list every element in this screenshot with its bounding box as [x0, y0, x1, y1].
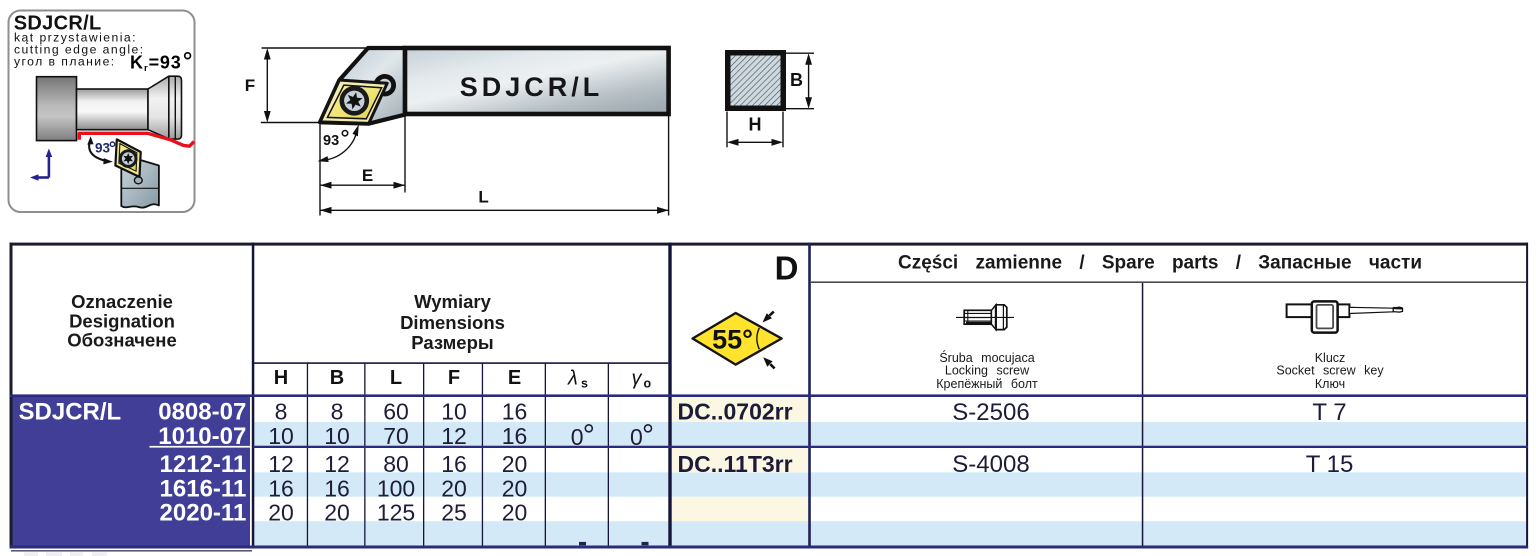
svg-text:20: 20	[502, 451, 528, 477]
svg-text:8: 8	[275, 399, 288, 425]
svg-text:12: 12	[268, 451, 294, 477]
svg-text:55°: 55°	[712, 325, 753, 355]
svg-text:80: 80	[383, 451, 409, 477]
svg-text:12: 12	[441, 423, 467, 449]
svg-text:L: L	[478, 188, 488, 207]
svg-text:Śruba mocujaca: Śruba mocujaca	[939, 350, 1034, 365]
svg-text:H: H	[274, 367, 288, 389]
svg-text:16: 16	[441, 451, 467, 477]
svg-text:Oznaczenie: Oznaczenie	[71, 291, 173, 312]
svg-text:16: 16	[324, 475, 350, 501]
svg-text:DC..0702rr: DC..0702rr	[678, 399, 793, 425]
svg-text:25: 25	[441, 500, 467, 526]
svg-text:Обозначене: Обозначене	[67, 330, 177, 351]
svg-text:0808-07: 0808-07	[158, 399, 246, 426]
svg-text:S-4008: S-4008	[952, 451, 1029, 478]
svg-text:60: 60	[383, 399, 409, 425]
svg-text:угол в плание:: угол в плание:	[14, 55, 116, 69]
svg-text:20: 20	[324, 500, 350, 526]
svg-text:K: K	[130, 53, 143, 73]
svg-text:1212-11: 1212-11	[160, 451, 247, 478]
svg-text:93: 93	[323, 133, 339, 149]
svg-text:93: 93	[95, 141, 111, 156]
svg-text:s: s	[581, 377, 588, 391]
svg-text:F: F	[245, 76, 255, 95]
svg-text:Części zamienne / Spare parts: Części zamienne / Spare parts / Запасные…	[898, 253, 1422, 274]
svg-text:T 15: T 15	[1306, 451, 1354, 478]
svg-text:=93: =93	[149, 53, 182, 73]
svg-text:0: 0	[571, 424, 584, 450]
svg-text:F: F	[448, 367, 460, 389]
svg-text:2020-11: 2020-11	[160, 500, 247, 527]
svg-text:E: E	[508, 367, 521, 389]
svg-text:20: 20	[441, 475, 467, 501]
svg-text:Dimensions: Dimensions	[400, 312, 505, 333]
svg-text:8: 8	[331, 399, 344, 425]
svg-text:T 7: T 7	[1312, 399, 1346, 426]
svg-text:10: 10	[268, 423, 294, 449]
svg-text:Klucz: Klucz	[1315, 351, 1346, 365]
svg-text:10: 10	[441, 399, 467, 425]
svg-text:20: 20	[502, 500, 528, 526]
svg-text:E: E	[362, 166, 373, 185]
svg-text:16: 16	[502, 423, 528, 449]
svg-text:λ: λ	[567, 368, 578, 390]
svg-text:D: D	[775, 250, 799, 287]
svg-text:125: 125	[377, 500, 415, 526]
svg-text:70: 70	[383, 423, 409, 449]
svg-text:16: 16	[268, 475, 294, 501]
svg-text:Ключ: Ключ	[1315, 377, 1345, 391]
svg-text:Крепёжный болт: Крепёжный болт	[936, 377, 1038, 391]
svg-text:L: L	[390, 367, 402, 389]
svg-text:DC..11T3rr: DC..11T3rr	[678, 451, 793, 477]
svg-text:12: 12	[324, 451, 350, 477]
svg-text:γ: γ	[632, 368, 643, 390]
svg-text:Locking screw: Locking screw	[945, 364, 1030, 378]
svg-text:o: o	[644, 377, 652, 391]
svg-text:H: H	[749, 114, 762, 134]
svg-text:1010-07: 1010-07	[158, 423, 246, 450]
svg-text:10: 10	[324, 423, 350, 449]
svg-text:S-2506: S-2506	[952, 399, 1029, 426]
svg-text:1616-11: 1616-11	[160, 475, 247, 502]
svg-text:Designation: Designation	[69, 310, 175, 331]
svg-text:SDJCR/L: SDJCR/L	[19, 399, 122, 426]
svg-text:16: 16	[502, 399, 528, 425]
svg-text:B: B	[790, 70, 803, 90]
svg-text:Socket screw key: Socket screw key	[1276, 364, 1384, 378]
svg-text:20: 20	[268, 500, 294, 526]
svg-text:Wymiary: Wymiary	[414, 291, 491, 312]
svg-text:B: B	[330, 367, 344, 389]
svg-text:0: 0	[630, 424, 643, 450]
svg-text:Размеры: Размеры	[411, 332, 493, 353]
svg-text:100: 100	[377, 475, 415, 501]
svg-text:SDJCR/L: SDJCR/L	[460, 72, 604, 102]
svg-text:20: 20	[502, 475, 528, 501]
svg-text:r: r	[144, 63, 148, 74]
